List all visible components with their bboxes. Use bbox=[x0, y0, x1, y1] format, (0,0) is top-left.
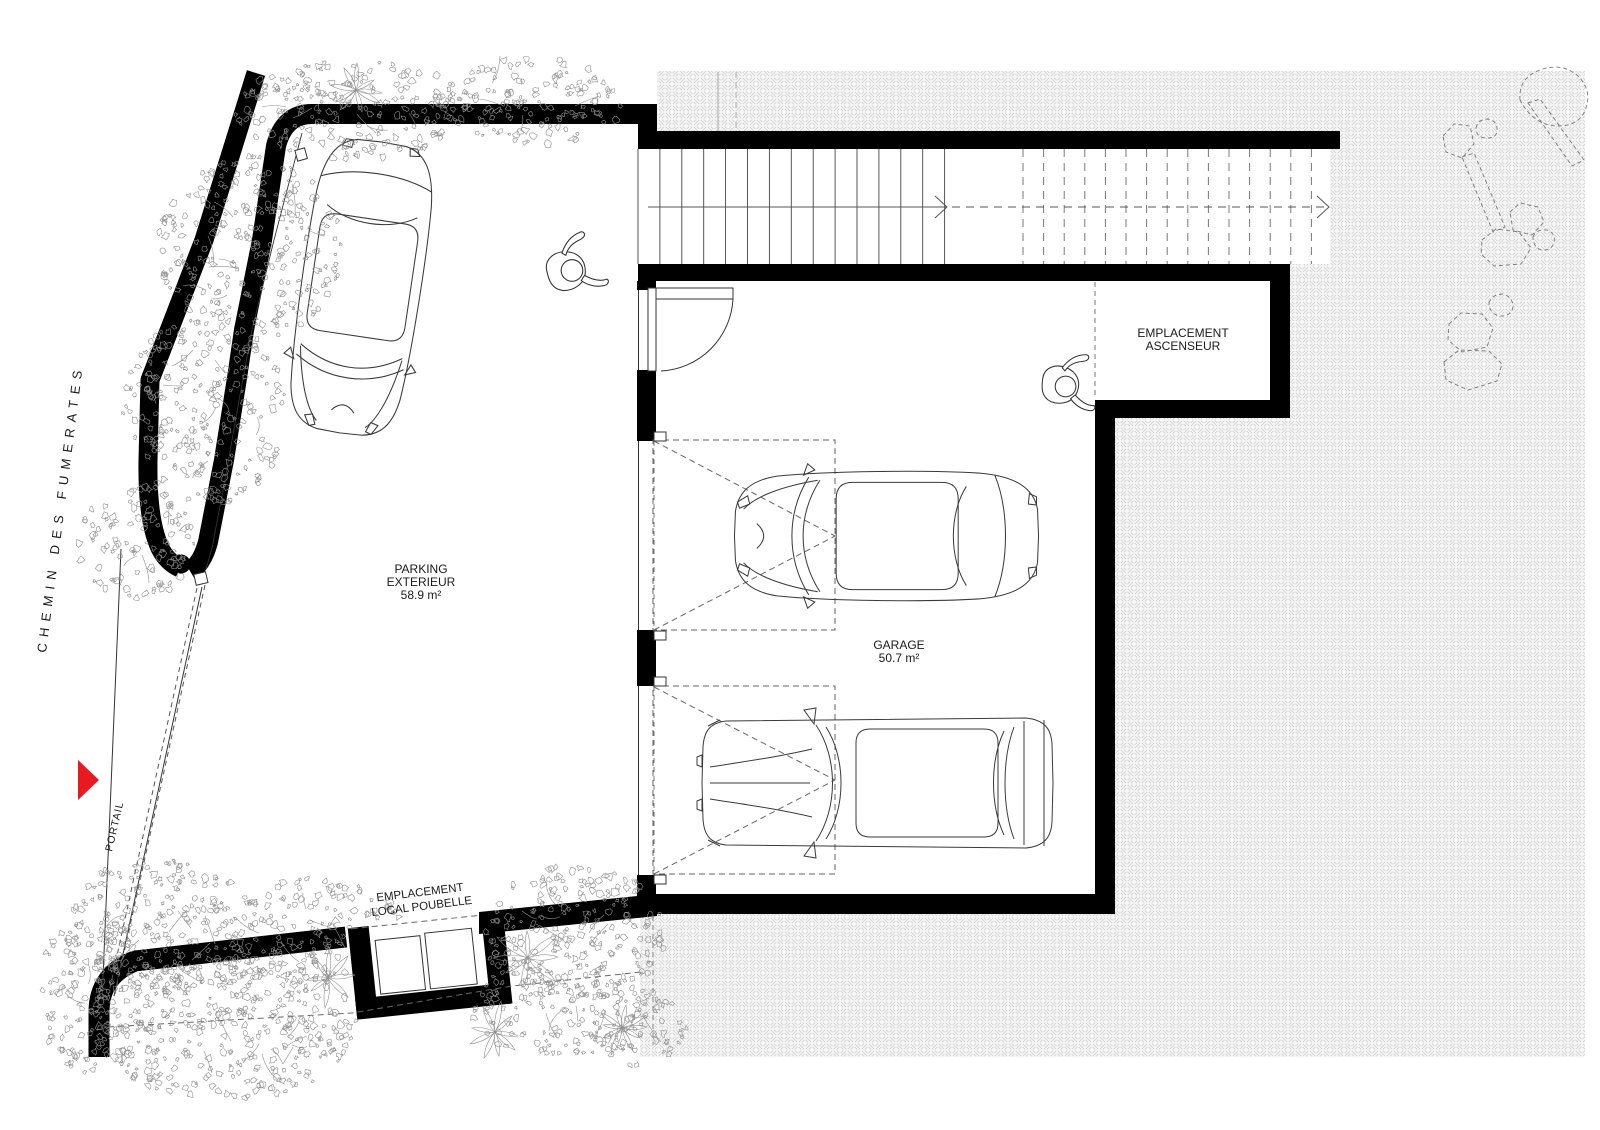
svg-text:50.7 m²: 50.7 m² bbox=[879, 651, 920, 665]
svg-text:58.9 m²: 58.9 m² bbox=[401, 588, 442, 602]
svg-text:EMPLACEMENT: EMPLACEMENT bbox=[1137, 326, 1229, 340]
svg-text:EXTERIEUR: EXTERIEUR bbox=[387, 575, 456, 589]
svg-text:ASCENSEUR: ASCENSEUR bbox=[1146, 339, 1221, 353]
svg-text:GARAGE: GARAGE bbox=[873, 638, 924, 652]
svg-text:PARKING: PARKING bbox=[394, 562, 447, 576]
